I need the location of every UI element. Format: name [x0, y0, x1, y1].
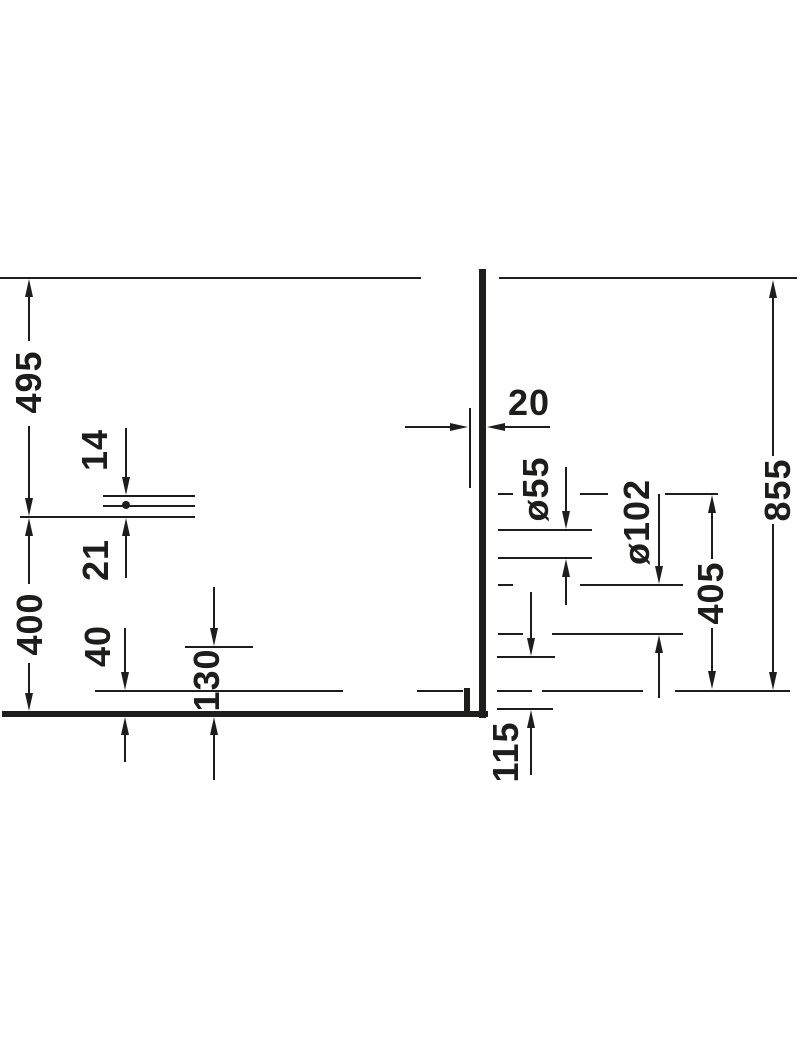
arrowhead-up [122, 518, 130, 536]
arrowhead-down [769, 672, 777, 690]
dim-label-dia55: ø55 [518, 456, 554, 521]
rim-detail-line [103, 505, 195, 507]
arrowhead-up [210, 717, 218, 735]
arrowhead-down [527, 638, 535, 656]
rim-detail-line [103, 495, 195, 497]
dim-label-495: 495 [11, 350, 47, 413]
arrowhead-down [562, 511, 570, 529]
arrowhead-down [121, 672, 129, 690]
dimension-shaft [505, 426, 550, 428]
reference-line [417, 690, 463, 692]
hole-edge-line [498, 557, 592, 559]
dimension-shaft [711, 513, 713, 559]
dim-label-21: 21 [78, 539, 114, 581]
top-extension-line [0, 277, 421, 279]
technical-drawing-canvas: 495 400 14 21 40 130 20 ø55 ø102 405 [0, 0, 800, 1058]
dimension-shaft [28, 536, 30, 584]
arrowhead-up [655, 635, 663, 653]
dimension-shaft [530, 592, 532, 638]
hole-edge-line [498, 529, 592, 531]
dimension-shaft [213, 587, 215, 628]
dimension-shaft [124, 628, 126, 672]
dimension-shaft [28, 297, 30, 341]
dimension-shaft [658, 653, 660, 698]
drain-center-dot [122, 501, 130, 509]
wall-section-line [479, 269, 486, 718]
hole-edge-line [498, 633, 523, 635]
arrowhead-right [450, 423, 468, 431]
dimension-shaft [125, 536, 127, 578]
arrowhead-up [527, 710, 535, 728]
dimension-shaft [772, 298, 774, 456]
dim-label-115: 115 [488, 721, 524, 782]
dimension-shaft [658, 494, 660, 566]
dimension-shaft [124, 735, 126, 762]
arrowhead-up [708, 495, 716, 513]
dim-label-20: 20 [508, 385, 550, 421]
dimension-shaft [405, 426, 450, 428]
dim-label-14: 14 [77, 429, 113, 471]
arrowhead-up [121, 717, 129, 735]
reference-line [497, 690, 532, 692]
dim-label-405: 405 [693, 561, 729, 624]
dim-label-dia102: ø102 [619, 479, 655, 565]
dim-label-130: 130 [189, 648, 225, 711]
floor-section-line [2, 711, 488, 717]
dimension-shaft [711, 628, 713, 671]
reference-line [497, 656, 555, 658]
extension-line [498, 493, 513, 495]
arrowhead-up [25, 279, 33, 297]
dimension-shaft [772, 524, 774, 672]
dimension-shaft [565, 467, 567, 511]
arrowhead-up [25, 518, 33, 536]
arrowhead-down [210, 628, 218, 646]
arrowhead-down [25, 693, 33, 711]
floor-extension-line [497, 708, 553, 710]
arrowhead-down [655, 566, 663, 584]
hole-edge-line [580, 584, 683, 586]
arrowhead-left [487, 423, 505, 431]
reference-line [675, 690, 790, 692]
dimension-shaft [125, 428, 127, 477]
dim-label-855: 855 [760, 458, 796, 521]
dimension-shaft [213, 735, 215, 780]
rim-extension-line [20, 516, 195, 518]
dim-label-40: 40 [80, 625, 116, 667]
arrowhead-up [769, 280, 777, 298]
arrowhead-up [562, 559, 570, 577]
hole-edge-line [552, 633, 683, 635]
tub-rear-edge-line [464, 688, 470, 711]
arrowhead-down [25, 498, 33, 516]
dim-label-400: 400 [12, 592, 48, 655]
extension-line [580, 493, 608, 495]
arrowhead-down [122, 477, 130, 495]
dimension-shaft [565, 577, 567, 605]
reference-line [542, 690, 643, 692]
dimension-shaft [530, 728, 532, 775]
hole-edge-line [498, 584, 513, 586]
dimension-shaft [28, 663, 30, 693]
arrowhead-down [708, 671, 716, 689]
tub-edge-extension-line [469, 408, 471, 488]
dimension-shaft [28, 426, 30, 498]
top-extension-line [499, 277, 797, 279]
